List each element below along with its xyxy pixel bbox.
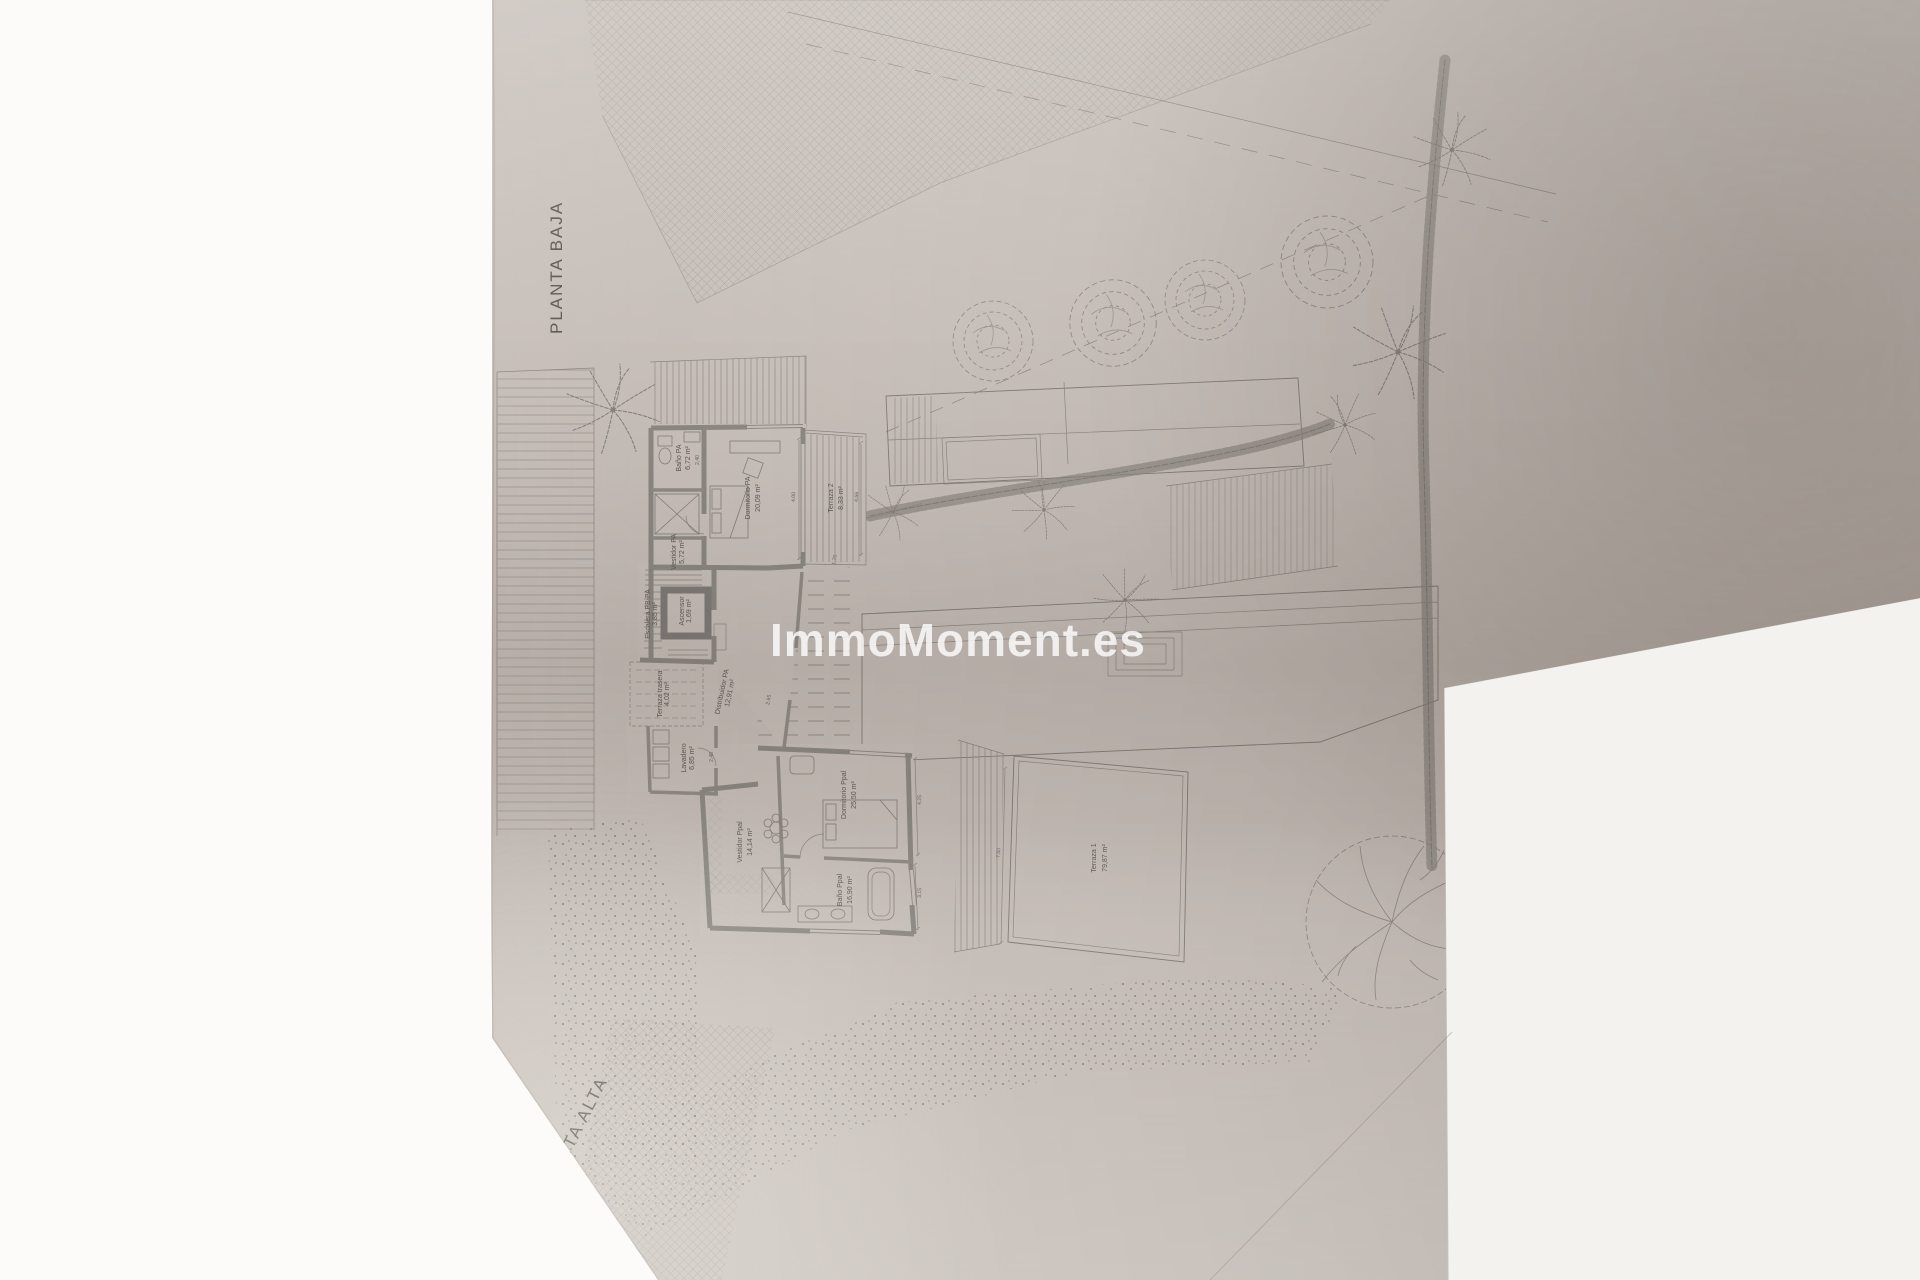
room-label-ascensor: Ascensor 1,69 m² <box>679 596 693 626</box>
room-area: 16,90 m² <box>847 876 854 904</box>
room-area: 4,02 m² <box>664 681 671 705</box>
floorplan-canvas: Baño PA 6,72 m² Dormitorio PA 20,09 m² T… <box>0 0 1920 1280</box>
room-name: Terraza 1 <box>1091 843 1098 872</box>
room-area: 14,14 m² <box>747 828 754 856</box>
dim-text: 4,66 <box>854 492 860 502</box>
room-name: Terraza trasera <box>657 670 664 717</box>
room-area: 20,09 m² <box>755 484 762 512</box>
room-area: 6,85 m² <box>689 745 696 769</box>
bright-overexposed-area <box>1444 598 1920 1280</box>
dim-text: 2,48 <box>709 752 715 762</box>
floorplan-photo: Baño PA 6,72 m² Dormitorio PA 20,09 m² T… <box>0 0 1920 1280</box>
room-label-lavadero: Lavadero 6,85 m² <box>681 743 696 772</box>
room-name: Terraza 2 <box>828 483 835 512</box>
room-name: Ascensor <box>679 596 686 626</box>
room-name: Escalera PB-PA <box>645 589 652 639</box>
room-area: 8,33 m² <box>838 485 845 509</box>
sheet-label-planta-baja: PLANTA BAJA <box>547 201 566 334</box>
watermark-text: ImmoMoment.es <box>770 614 1146 666</box>
room-area: 6,72 m² <box>685 445 692 469</box>
room-name: Vestidor PA <box>671 534 678 570</box>
room-name: Baño Ppal <box>837 873 844 906</box>
room-name: Lavadero <box>681 743 688 772</box>
dim-text: 7,50 <box>996 848 1003 859</box>
room-name: Baño PA <box>676 444 683 471</box>
room-area: 25,50 m² <box>851 781 858 809</box>
room-area: 1,69 m² <box>686 598 693 622</box>
dim-text: 4,25 <box>917 795 923 805</box>
driveway-stripes <box>497 368 594 836</box>
upper-deck-stripes <box>650 356 806 432</box>
dim-text: 2,40 <box>695 455 701 465</box>
room-area: 5,72 m² <box>679 539 686 563</box>
room-area: 3,85 m² <box>652 601 659 625</box>
room-name: Dormitorio PA <box>745 476 752 519</box>
room-area: 79,87 m² <box>1102 844 1109 872</box>
room-name: Vestidor Ppal <box>737 821 744 863</box>
dim-text: 3,15 <box>917 888 923 898</box>
room-name: Dormitorio Ppal <box>841 770 848 819</box>
closet-band <box>710 874 774 894</box>
dim-text: 4,00 <box>791 492 797 502</box>
